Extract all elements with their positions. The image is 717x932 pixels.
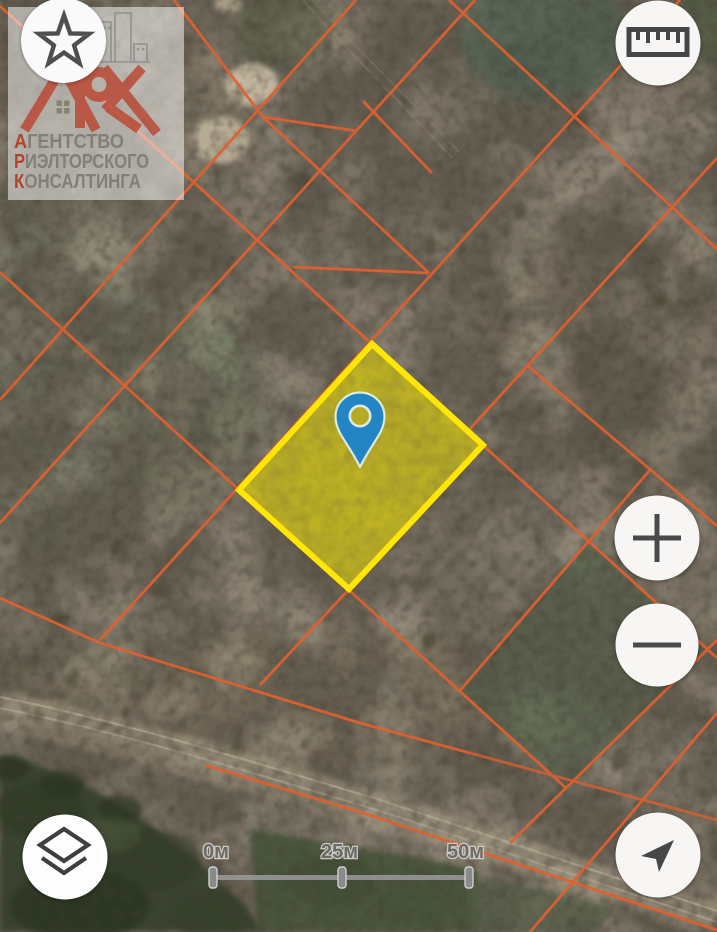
svg-text:25м: 25м [321,841,358,863]
svg-text:АГЕНТСТВО: АГЕНТСТВО [14,131,124,153]
svg-text:50м: 50м [447,841,484,863]
svg-text:КОНСАЛТИНГА: КОНСАЛТИНГА [14,171,141,193]
svg-text:РИЭЛТОРСКОГО: РИЭЛТОРСКОГО [14,151,149,173]
svg-text:0м: 0м [203,841,229,863]
